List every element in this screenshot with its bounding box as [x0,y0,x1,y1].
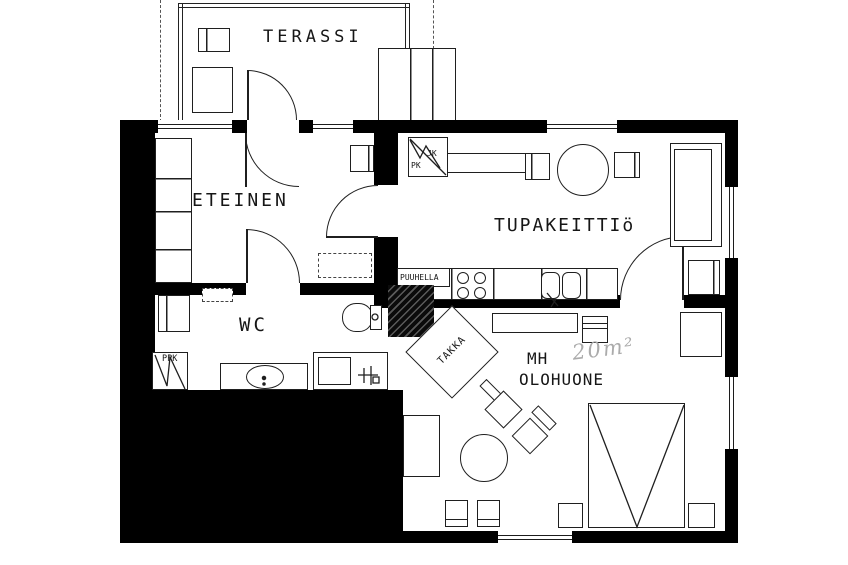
terrace-boundary-dashed-right [433,0,434,49]
window-top-eteinen-2 [313,120,353,133]
coffee-table [460,434,508,482]
eteinen-dashed-cabinet [318,253,372,278]
livingroom-bench [403,415,440,477]
eteinen-sideboard [350,145,374,172]
wall-right [725,120,738,543]
nightstand-left [558,503,583,528]
stove-burner-1 [457,272,469,284]
wall-bottom [120,531,738,543]
small-table-2 [477,500,500,527]
wood-stove-label: PUUHELLA [400,273,439,282]
window-top-kitchen [547,120,617,133]
nightstand-right [688,503,715,528]
dining-chair-left [525,153,550,180]
wc-dashed-hatch [202,288,233,302]
terrace-boundary-dashed-left [160,0,161,122]
terrace-edge-left [178,3,183,122]
freezer-label: PK [411,161,421,170]
dining-chair-right [614,152,640,178]
washing-machine-label: PPK [162,354,177,364]
terrace-steps [378,48,456,122]
door-arc-eteinen-entry [245,133,299,187]
door-leaf-terrace [247,70,249,120]
toilet-tank [370,305,382,330]
solid-black-mass [120,390,403,531]
eteinen-label: ETEINEN [192,190,289,211]
eteinen-closet [155,138,192,283]
kitchen-side-counter [447,153,530,173]
livingroom-sideboard [492,313,578,333]
terrace-chair [198,28,230,52]
small-table-1 [445,500,468,527]
door-leaf-wc [246,229,248,283]
stove-burner-4 [474,287,486,299]
fridge-label: JK [427,149,437,158]
livingroom-label: OLOHUONE [519,370,604,389]
window-right-livingroom [725,377,738,449]
handwritten-area-note: 20m² [571,333,637,365]
stove-burner-2 [474,272,486,284]
kitchen-label: TUPAKEITTIö [494,215,635,236]
sink-basin-left [541,272,560,299]
wall-table [680,312,722,357]
wc-label: WC [239,314,268,336]
doorway-eteinen-wc [246,283,300,295]
bedroom-label: MH [527,349,548,368]
sink-basin-right [562,272,581,299]
doorway-terrace [247,120,299,133]
window-right-kitchen [725,187,738,258]
wc-cabinet [158,295,190,332]
door-arc-terrace [247,70,297,120]
terrace-edge-right [405,3,410,53]
door-leaf-kitchen [326,236,378,238]
terrace-label: TERASSI [263,27,363,47]
window-bottom-livingroom [498,531,572,543]
kitchen-chair [688,260,720,295]
window-top-eteinen-1 [158,120,232,133]
toilet-bowl [342,303,373,332]
door-arc-wc [246,229,300,283]
door-leaf-eteinen-entry [245,133,247,187]
terrace-edge-top [178,3,410,8]
wc-sink-basin [246,365,284,389]
dining-table [557,144,609,196]
bed [588,403,685,528]
wc-right-unit-inner [318,357,351,385]
stove-burner-3 [457,287,469,299]
sofa-seat [674,149,712,241]
floor-plan-canvas: TERASSI ETEINEN JK PK PUUHELLA [0,0,848,565]
door-arc-kitchen [326,185,378,237]
terrace-table [192,67,233,113]
